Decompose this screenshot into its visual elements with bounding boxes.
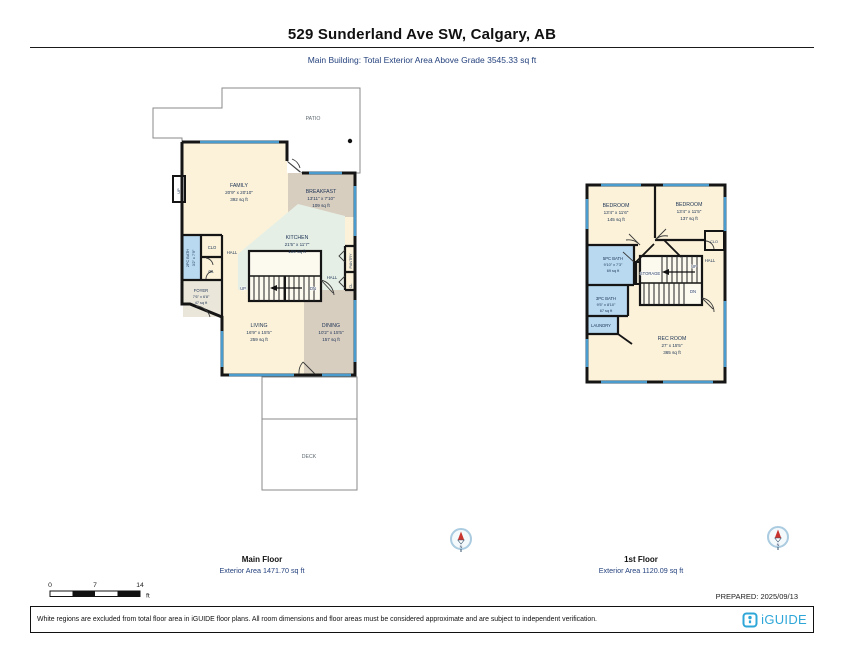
svg-text:REC ROOM: REC ROOM [658,336,687,342]
svg-text:13'4" x 11'6": 13'4" x 11'6" [604,210,629,215]
svg-text:259 sq ft: 259 sq ft [250,337,268,342]
svg-text:2PC BATH: 2PC BATH [186,249,190,268]
storage-label: STORAGE [640,271,661,276]
main-floor-name: Main Floor [172,555,352,564]
deck-label: DECK [302,454,317,460]
svg-text:KITCHEN: KITCHEN [286,235,309,241]
svg-text:365 sq ft: 365 sq ft [663,350,681,355]
svg-text:10'2" x 15'5": 10'2" x 15'5" [318,330,344,335]
svg-text:13'4" x 11'5": 13'4" x 11'5" [677,209,702,214]
patio-door-dot [348,139,352,143]
compass-n-letter: N [460,545,463,549]
first-floor-area: Exterior Area 1120.09 sq ft [551,566,731,575]
hall-label: HALL [705,258,716,263]
svg-text:27' x 15'5": 27' x 15'5" [661,343,682,348]
cl-left-label: CL [208,269,214,274]
svg-text:9'5" x 8'10": 9'5" x 8'10" [597,303,616,307]
svg-text:5PC BATH: 5PC BATH [603,256,623,261]
svg-text:109 sq ft: 109 sq ft [312,203,330,208]
floorplan-canvas: PATIO DECK FAMILY 20'9" x 20'10" 392 sq … [0,0,844,647]
exterior-up-label: UP [177,188,181,194]
svg-text:DINING: DINING [322,323,340,329]
foyer-fill [183,281,221,317]
scale-bar: 0 7 14 ft [48,582,150,600]
svg-text:199 sq ft: 199 sq ft [288,249,306,254]
first-floor-caption: 1st Floor Exterior Area 1120.09 sq ft [551,555,731,575]
scale-zero: 0 [48,582,52,589]
svg-text:20'9" x 20'10": 20'9" x 20'10" [225,190,253,195]
dn-label: DN [690,289,696,294]
first-floor-name: 1st Floor [551,555,731,564]
svg-text:157 sq ft: 157 sq ft [322,337,340,342]
prepared-date: PREPARED: 2025/09/13 [598,592,798,601]
compass-n-letter: N [777,543,780,547]
pantry-label: PANTRY [349,253,353,269]
stairs-up-label: UP [240,286,246,291]
svg-text:BREAKFAST: BREAKFAST [306,189,337,195]
compass-first-floor: N [768,527,788,550]
scale-bar-segment [73,591,96,597]
svg-text:LIVING: LIVING [250,323,267,329]
closet-label: CLO [208,245,217,250]
svg-text:16'9" x 15'5": 16'9" x 15'5" [246,330,272,335]
scale-unit: ft [146,593,150,600]
patio-label: PATIO [306,116,321,122]
footer-bar: White regions are excluded from total fl… [30,606,814,633]
iguide-brand: iGUIDE [742,612,807,628]
footer-disclaimer: White regions are excluded from total fl… [37,616,597,623]
deck-upper-outline [262,377,357,419]
scale-fourteen: 14 [136,582,144,589]
hall-right-label: HALL [327,275,338,280]
svg-text:BEDROOM: BEDROOM [676,202,703,208]
up-label: UP [691,264,697,269]
svg-text:FAMILY: FAMILY [230,183,249,189]
stairs-dn-label: DN [310,286,316,291]
scale-seven: 7 [93,582,97,589]
clo-label: CLO [710,240,718,244]
svg-text:13'11" x 7'10": 13'11" x 7'10" [307,196,335,201]
svg-text:145 sq ft: 145 sq ft [607,217,625,222]
svg-text:47 sq ft: 47 sq ft [195,301,208,305]
cl-right-label: CL [349,284,353,289]
svg-text:3PC BATH: 3PC BATH [596,296,616,301]
svg-text:9'10" x 7'3": 9'10" x 7'3" [604,263,623,267]
floorplan-page: 529 Sunderland Ave SW, Calgary, AB Main … [0,0,844,647]
svg-text:BEDROOM: BEDROOM [603,203,630,209]
svg-text:7'6" x 6'8": 7'6" x 6'8" [193,295,210,299]
svg-text:21'5" x 11'7": 21'5" x 11'7" [285,242,310,247]
svg-text:392 sq ft: 392 sq ft [230,197,248,202]
main-floor-caption: Main Floor Exterior Area 1471.70 sq ft [172,555,352,575]
svg-text:137 sq ft: 137 sq ft [680,216,698,221]
iguide-logo-icon [742,612,758,628]
compass-main-floor: N [451,529,471,552]
svg-text:FOYER: FOYER [194,288,208,293]
hall-left-label: HALL [227,250,238,255]
scale-bar-segment [118,591,141,597]
svg-text:67 sq ft: 67 sq ft [600,309,613,313]
svg-text:69 sq ft: 69 sq ft [607,269,620,273]
main-stairs [249,251,321,301]
main-floor-plan: PATIO DECK FAMILY 20'9" x 20'10" 392 sq … [153,88,360,490]
first-floor-plan: BEDROOM 13'4" x 11'6" 145 sq ft BEDROOM … [587,185,725,382]
laundry-label: LAUNDRY [591,323,611,328]
svg-text:3'2" x 7'9": 3'2" x 7'9" [192,249,196,266]
iguide-logo-text: iGUIDE [761,612,807,627]
main-floor-area: Exterior Area 1471.70 sq ft [172,566,352,575]
